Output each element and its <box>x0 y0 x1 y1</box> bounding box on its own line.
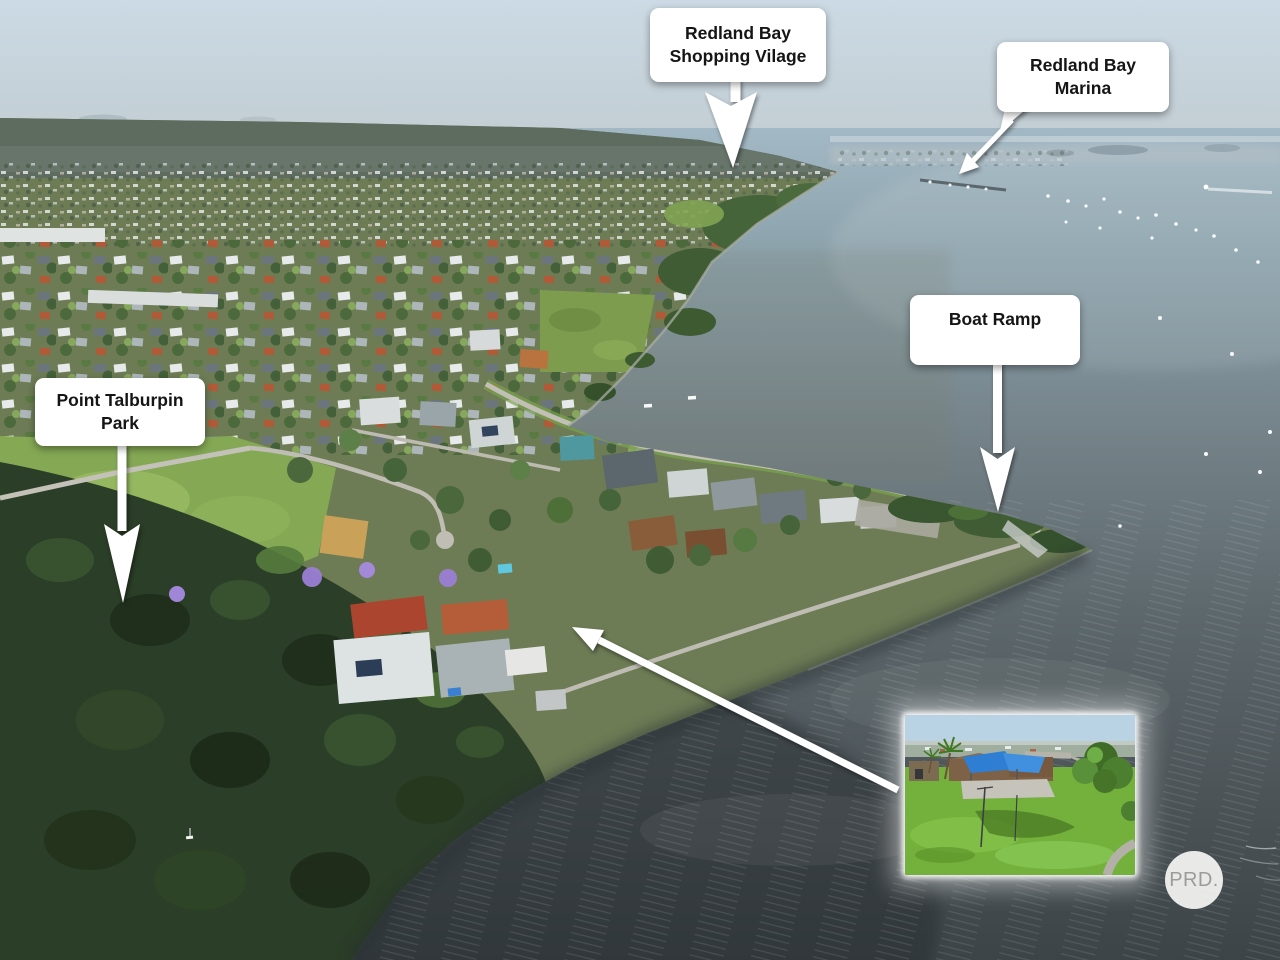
callout-shopping-village: Redland Bay Shopping Vilage <box>650 8 826 82</box>
inset-property-photo <box>905 715 1135 875</box>
callout-park-line1: Point Talburpin <box>56 389 183 412</box>
callout-shopping-village-line2: Shopping Vilage <box>670 45 807 68</box>
far-shore <box>830 144 1280 166</box>
prd-logo: PRD. <box>1165 851 1223 909</box>
inset-photo-art <box>905 715 1135 875</box>
prd-logo-text: PRD. <box>1169 869 1218 892</box>
callout-marina: Redland Bay Marina <box>997 42 1169 112</box>
callout-shopping-village-line1: Redland Bay <box>685 22 791 45</box>
callout-park-line2: Park <box>101 412 139 435</box>
callout-marina-line1: Redland Bay <box>1030 54 1136 77</box>
callout-boat-ramp: Boat Ramp <box>910 295 1080 365</box>
callout-park: Point Talburpin Park <box>35 378 205 446</box>
screenshot: Redland Bay Shopping Vilage Redland Bay … <box>0 0 1280 960</box>
callout-marina-line2: Marina <box>1055 77 1111 100</box>
callout-boat-ramp-line1: Boat Ramp <box>949 308 1041 331</box>
